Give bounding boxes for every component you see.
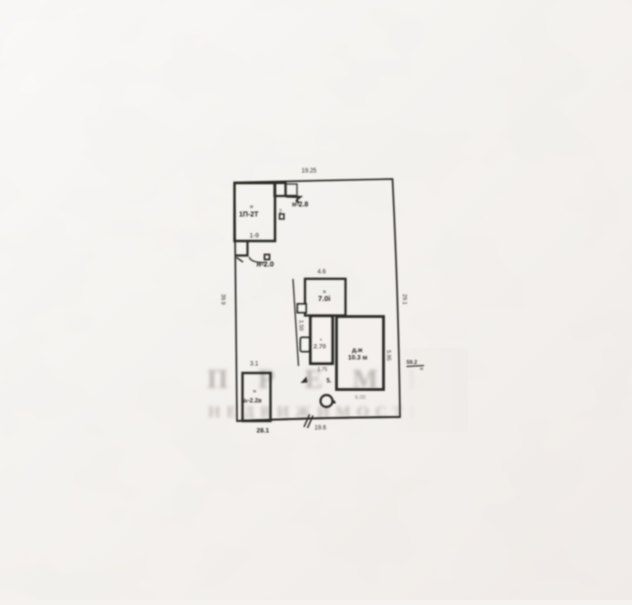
svg-text:н-2.0: н-2.0 (257, 260, 274, 269)
svg-text:1П-2Т: 1П-2Т (239, 212, 259, 219)
svg-text:+: + (320, 338, 323, 344)
svg-text:3.1: 3.1 (250, 362, 259, 368)
svg-text:6.00: 6.00 (355, 395, 366, 401)
svg-text:39.9: 39.9 (220, 294, 226, 305)
svg-text:2.70: 2.70 (314, 344, 327, 351)
svg-text:н-2.8: н-2.8 (292, 202, 308, 209)
svg-text:19.25: 19.25 (302, 169, 318, 175)
svg-text:7.0і: 7.0і (318, 294, 331, 303)
svg-text:м: м (250, 204, 253, 209)
svg-text:5.: 5. (327, 379, 332, 385)
svg-text:1-9: 1-9 (250, 233, 260, 240)
svg-text:10.3 м: 10.3 м (348, 355, 367, 362)
svg-text:№-2.2в: №-2.2в (241, 398, 262, 405)
svg-text:д.ж: д.ж (352, 347, 363, 354)
svg-text:29.1: 29.1 (401, 294, 407, 305)
svg-text:м: м (253, 389, 256, 394)
svg-text:5.95: 5.95 (385, 350, 391, 361)
svg-text:59.2: 59.2 (407, 360, 418, 366)
svg-text:28.1: 28.1 (257, 428, 270, 435)
svg-text:1.50: 1.50 (298, 320, 304, 331)
svg-text:ж: ж (323, 289, 326, 294)
svg-text:19.6: 19.6 (315, 426, 327, 432)
svg-text:м: м (420, 366, 423, 371)
svg-text:4.6: 4.6 (318, 270, 327, 276)
svg-text:1.75: 1.75 (318, 367, 328, 373)
